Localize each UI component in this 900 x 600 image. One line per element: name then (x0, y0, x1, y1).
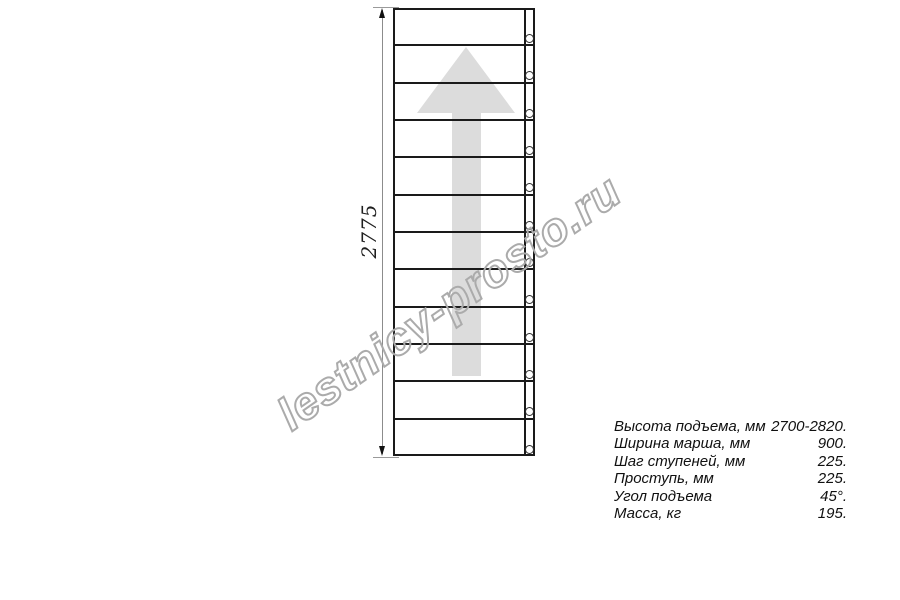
step-line (393, 44, 535, 46)
step-line (393, 156, 535, 158)
spec-label: Шаг ступеней, мм (614, 453, 745, 470)
extension-line-bottom (373, 457, 399, 458)
mounting-hole (525, 370, 534, 379)
spec-row: Ширина марша, мм900. (614, 435, 847, 452)
dimension-arrowhead-up-icon (379, 8, 385, 18)
spec-value: 45°. (820, 488, 847, 505)
spec-row: Масса, кг195. (614, 505, 847, 522)
mounting-hole (525, 445, 534, 454)
step-line (393, 119, 535, 121)
spec-row: Высота подъема, мм2700-2820. (614, 418, 847, 435)
step-line (393, 418, 535, 420)
spec-label: Угол подъема (614, 488, 712, 505)
spec-value: 195. (818, 505, 847, 522)
mounting-hole (525, 34, 534, 43)
dimension-label: 2775 (357, 204, 381, 259)
spec-value: 900. (818, 435, 847, 452)
spec-label: Проступь, мм (614, 470, 714, 487)
mounting-hole (525, 146, 534, 155)
spec-label: Высота подъема, мм (614, 418, 766, 435)
spec-value: 225. (818, 453, 847, 470)
spec-row: Угол подъема45°. (614, 488, 847, 505)
dimension-arrowhead-down-icon (379, 446, 385, 456)
mounting-hole (525, 109, 534, 118)
technical-drawing-canvas: 2775 lestnicy-prosto.ru Высота подъема, … (0, 0, 900, 600)
extension-line-top (373, 7, 399, 8)
mounting-hole (525, 333, 534, 342)
dimension-line (382, 10, 383, 454)
spec-label: Масса, кг (614, 505, 681, 522)
spec-value: 225. (818, 470, 847, 487)
spec-row: Шаг ступеней, мм225. (614, 453, 847, 470)
spec-label: Ширина марша, мм (614, 435, 750, 452)
spec-value: 2700-2820. (771, 418, 847, 435)
spec-row: Проступь, мм225. (614, 470, 847, 487)
step-line (393, 82, 535, 84)
step-line (393, 380, 535, 382)
spec-table: Высота подъема, мм2700-2820.Ширина марша… (614, 418, 847, 522)
step-line (393, 194, 535, 196)
